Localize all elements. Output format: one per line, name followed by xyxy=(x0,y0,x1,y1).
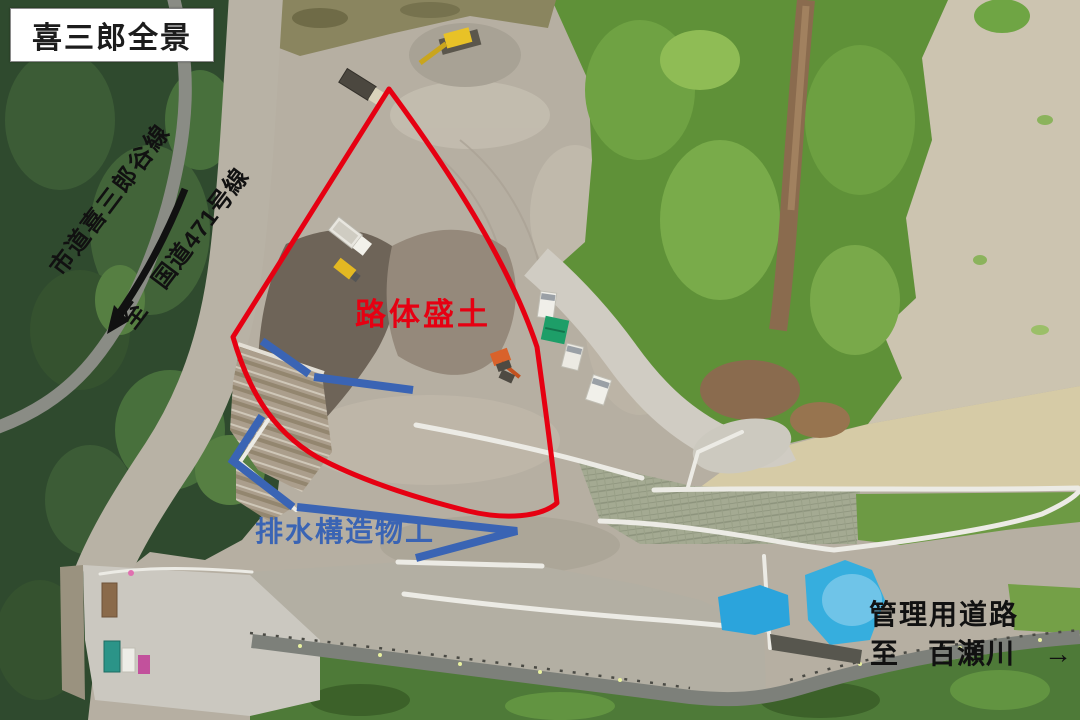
management-road-label: 管理用道路 xyxy=(869,599,1019,631)
yard-equipment xyxy=(102,583,117,617)
photo-title: 喜三郎全景 xyxy=(32,13,192,57)
annotated-aerial-photo: 喜三郎全景 市道喜三郎谷線 至 国道471号線 路体盛土 排水構造物工 管理用道… xyxy=(0,0,1080,720)
van-white-1 xyxy=(537,291,556,319)
destination-label: 至 百瀬川 → xyxy=(870,638,1073,670)
yard-dirt-edge xyxy=(60,565,85,700)
green-tarp-tent xyxy=(541,316,569,344)
survey-stake xyxy=(128,570,134,576)
embankment-label: 路体盛土 xyxy=(355,297,491,333)
photo-title-box: 喜三郎全景 xyxy=(10,8,214,62)
drainage-label: 排水構造物工 xyxy=(255,516,435,548)
parked-van-white xyxy=(122,648,135,672)
parked-car-pink xyxy=(138,655,150,674)
parked-truck-teal xyxy=(104,641,120,672)
